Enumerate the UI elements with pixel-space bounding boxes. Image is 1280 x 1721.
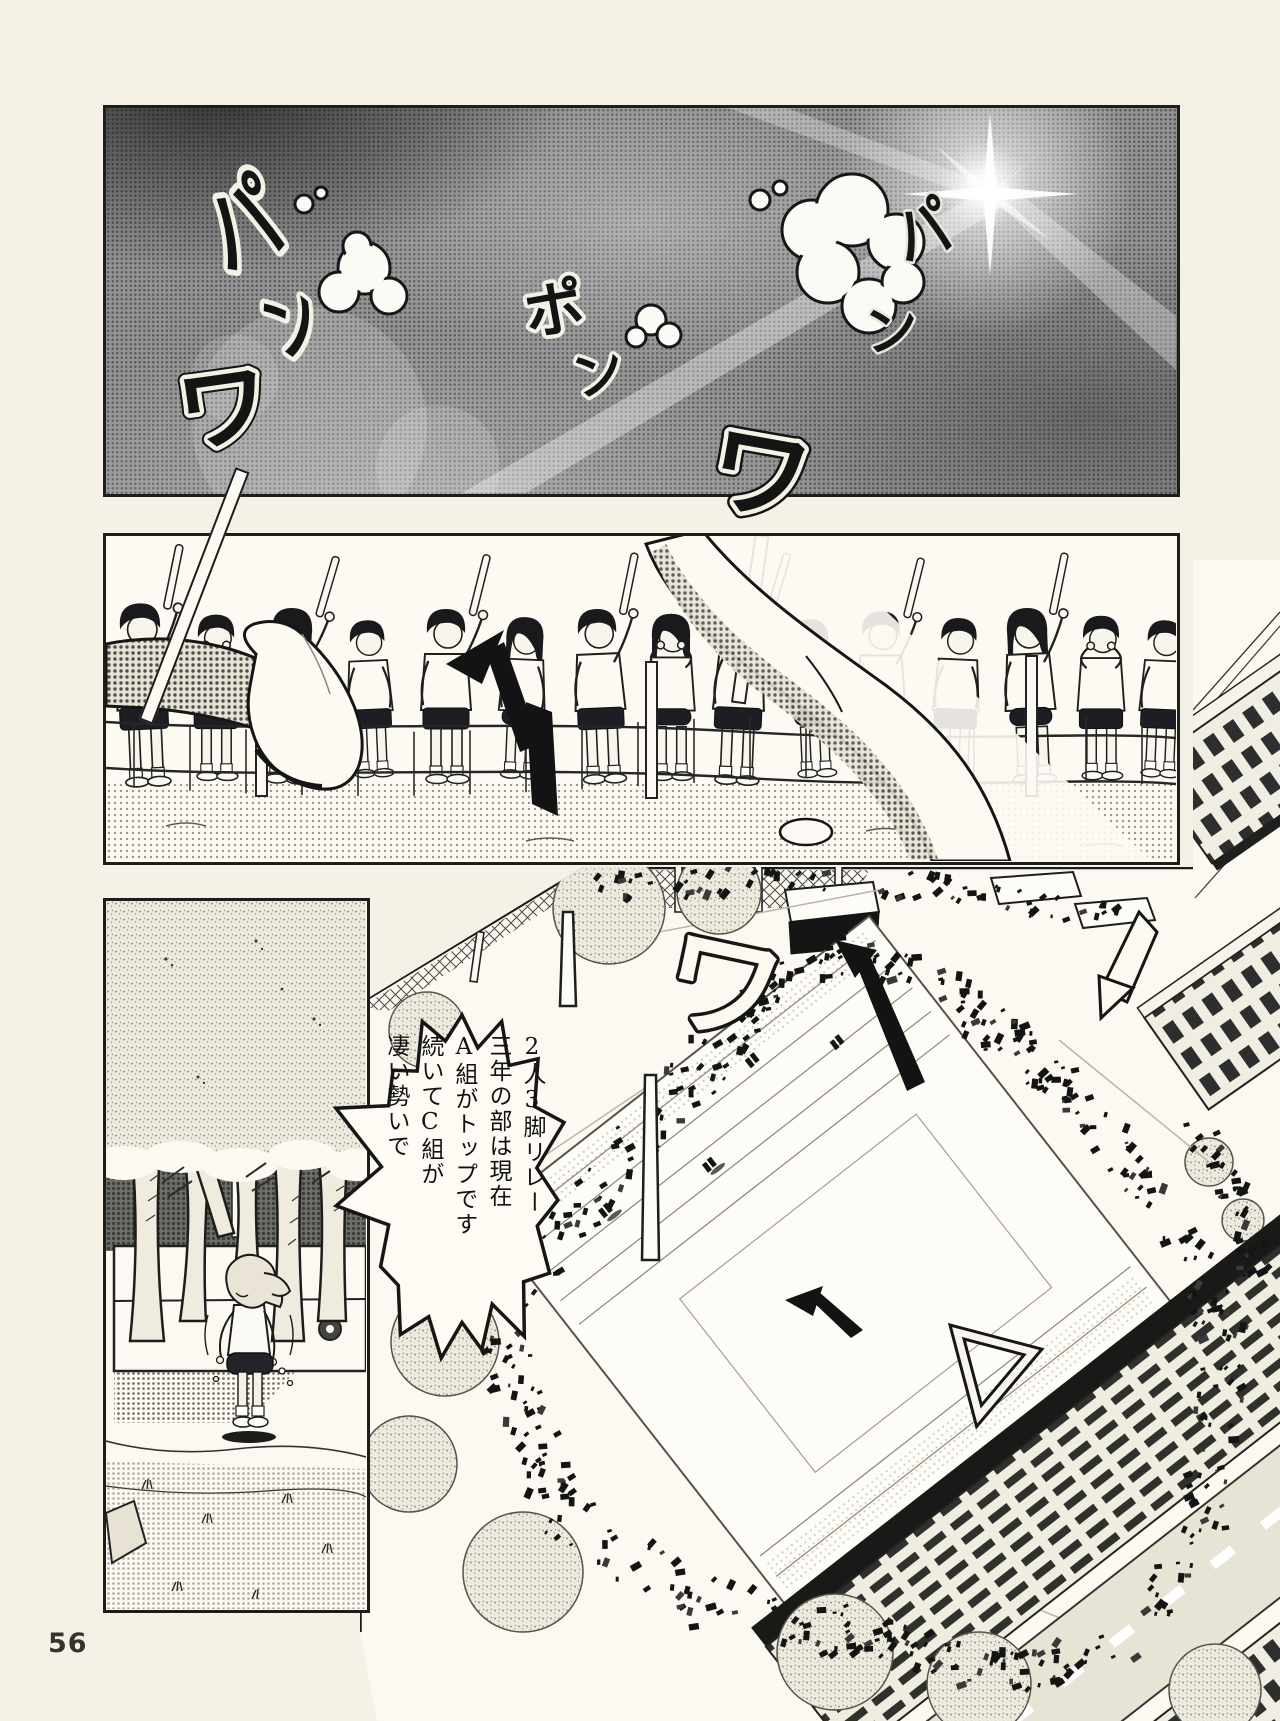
panel-sky: パ ン ポ ン パ ン ワ ワ: [103, 105, 1180, 497]
panel-crowd: [103, 533, 1180, 865]
bubble-line-2: 三年の部は現在: [484, 1034, 512, 1344]
page-number: 56: [48, 1628, 88, 1659]
announcement-bubble: 2人3脚リレー 三年の部は現在 A組がトップです 続いてC組が 凄い勢いで: [350, 990, 580, 1382]
tree-canopy: [106, 901, 366, 1197]
sfx-wa-gutter: ワ: [701, 408, 820, 541]
sfx-n-right: ン: [860, 295, 922, 365]
bubble-line-4: 続いてC組が: [416, 1034, 444, 1344]
panel-girl: [103, 898, 370, 1613]
bubble-line-3: A組がトップです: [450, 1034, 478, 1344]
sfx-po-mid: ポ: [519, 271, 590, 350]
sky-art: パ ン ポ ン パ ン ワ ワ: [106, 108, 1176, 493]
sfx-n-mid: ン: [565, 337, 633, 410]
sfx-wa-left: ワ: [171, 349, 277, 468]
crowd-art: [106, 536, 1176, 861]
smoke-puffs: [295, 174, 924, 347]
manga-page: ワ: [0, 0, 1280, 1721]
sfx-pa-left: パ: [188, 157, 300, 294]
bubble-line-5: 凄い勢いで: [382, 1034, 410, 1344]
sfx-wa-gutter-wrap: ワ ワ: [675, 372, 845, 552]
announcement-text: 2人3脚リレー 三年の部は現在 A組がトップです 続いてC組が 凄い勢いで: [396, 1034, 546, 1344]
girl-panel-art: [106, 901, 366, 1609]
bubble-line-1: 2人3脚リレー: [518, 1034, 546, 1344]
